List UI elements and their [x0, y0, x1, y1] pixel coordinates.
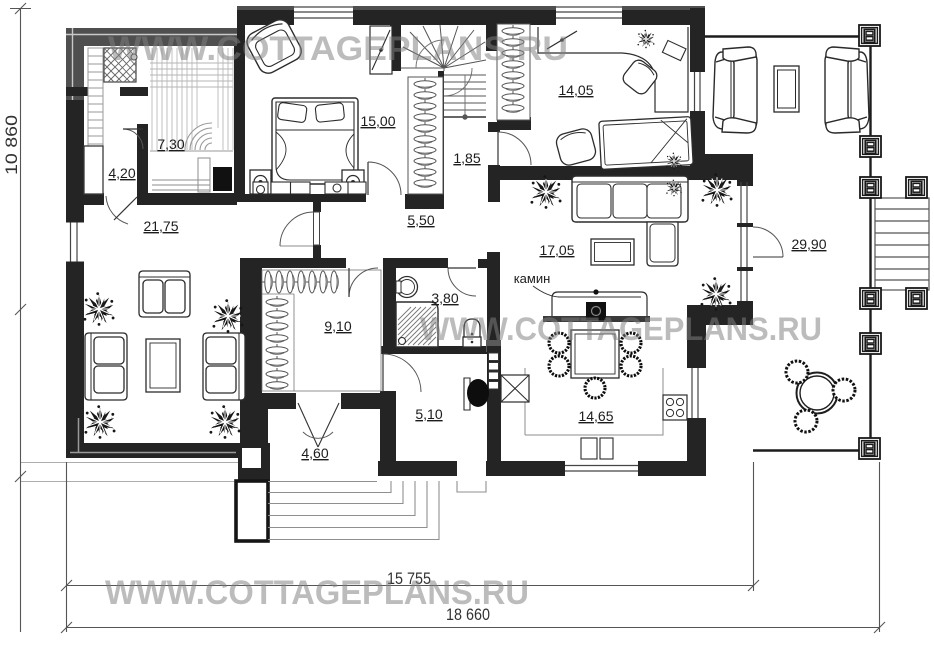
svg-text:14,05: 14,05: [558, 82, 593, 98]
svg-text:1,85: 1,85: [453, 150, 480, 166]
svg-text:4,60: 4,60: [301, 445, 328, 461]
svg-text:WWW.COTTAGEPLANS.RU: WWW.COTTAGEPLANS.RU: [105, 574, 529, 612]
svg-text:21,75: 21,75: [143, 218, 178, 234]
svg-text:3,80: 3,80: [431, 290, 458, 306]
svg-text:10 860: 10 860: [2, 115, 21, 175]
svg-text:WWW.COTTAGEPLANS.RU: WWW.COTTAGEPLANS.RU: [420, 311, 822, 347]
svg-text:17,05: 17,05: [539, 242, 574, 258]
svg-text:камин: камин: [514, 271, 551, 286]
svg-text:4,20: 4,20: [108, 165, 135, 181]
svg-text:29,90: 29,90: [791, 236, 826, 252]
svg-text:15,00: 15,00: [360, 113, 395, 129]
svg-text:5,10: 5,10: [415, 406, 442, 422]
svg-text:7,30: 7,30: [157, 136, 184, 152]
svg-text:9,10: 9,10: [324, 318, 351, 334]
svg-text:14,65: 14,65: [578, 408, 613, 424]
svg-text:5,50: 5,50: [407, 212, 434, 228]
svg-text:WWW.COTTAGEPLANS.RU: WWW.COTTAGEPLANS.RU: [108, 30, 568, 68]
